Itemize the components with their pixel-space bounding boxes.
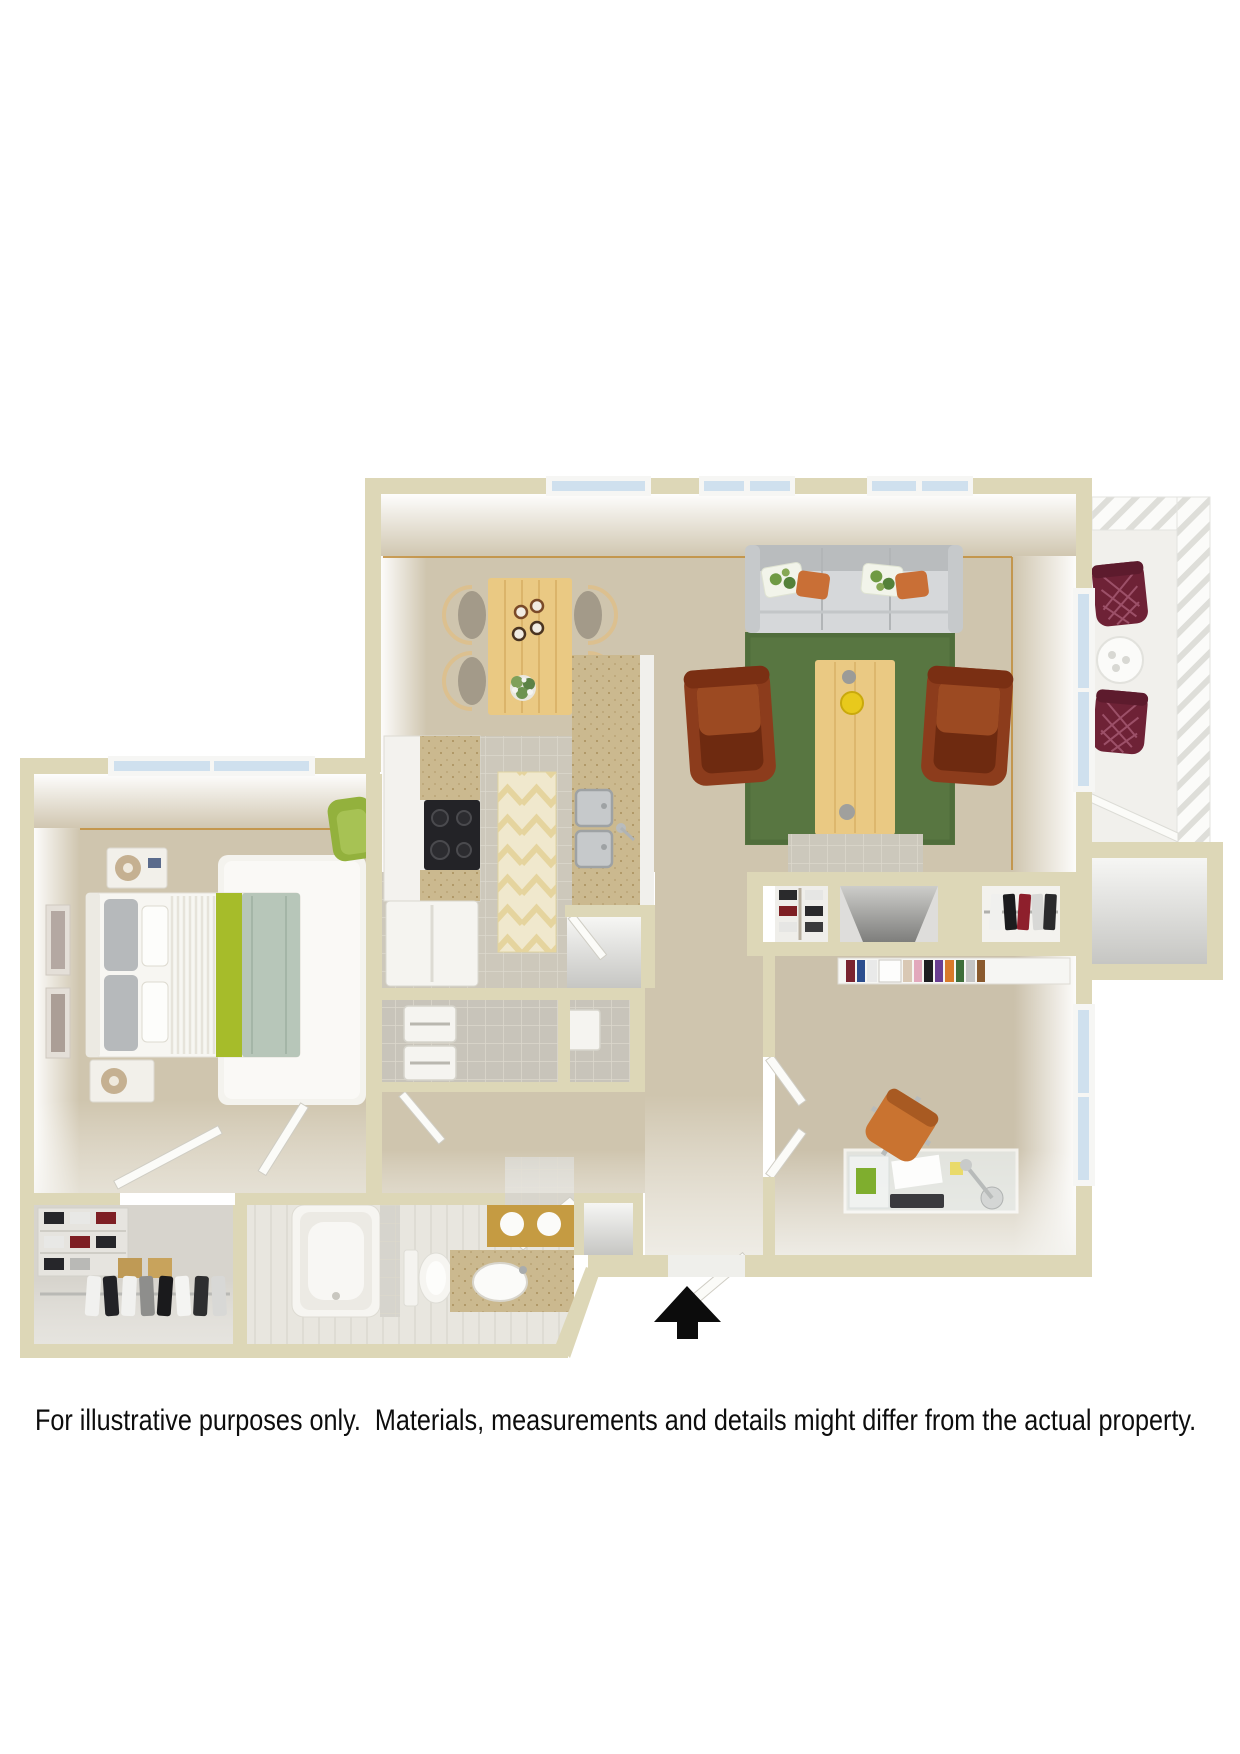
pillow (104, 899, 138, 971)
keyboard (890, 1194, 944, 1208)
office-window (1073, 1004, 1095, 1186)
dining-table (488, 578, 572, 715)
book (148, 858, 161, 868)
floor-plan-drawing (0, 0, 1240, 1754)
vanity (450, 1250, 574, 1312)
table-vase (842, 670, 856, 684)
accent-pillow (142, 982, 168, 1042)
coat-closet (984, 894, 1058, 931)
patio-chair-top (1091, 560, 1149, 627)
towel (500, 1212, 524, 1236)
gold-tile-shower (487, 1205, 574, 1247)
orange-pillow (895, 570, 930, 600)
bathtub (292, 1205, 380, 1317)
patio-storage-floor (1092, 858, 1207, 964)
table-vase (839, 804, 855, 820)
green-throw (216, 893, 242, 1057)
entry-closet-floor (584, 1203, 633, 1255)
entry-tile (788, 834, 923, 872)
coffee-table (815, 660, 895, 835)
dining-window (546, 476, 651, 496)
nightstand-bottom (90, 1060, 154, 1102)
disclaimer-text: For illustrative purposes only. Material… (35, 1404, 1228, 1438)
glass-desk (845, 1150, 1017, 1212)
storage-box (148, 1258, 172, 1278)
tile-wall-strip (380, 1205, 400, 1317)
accent-pillow (142, 906, 168, 966)
toilet (404, 1250, 453, 1306)
front-door-threshold (668, 1255, 745, 1277)
bedroom-window (108, 756, 315, 776)
bookshelf (838, 958, 1070, 984)
balcony-window (1073, 588, 1095, 792)
cooktop (424, 800, 480, 870)
oval-sink (473, 1263, 527, 1301)
floor-plan-page: For illustrative purposes only. Material… (0, 0, 1240, 1754)
skylight-window-pair-a (699, 476, 795, 496)
kitchen-counter-right (572, 655, 654, 905)
sofa (745, 545, 963, 633)
kitchen-cabinets-left (384, 736, 480, 901)
faucet (519, 1266, 527, 1274)
storage-box (118, 1258, 142, 1278)
runner-rug (498, 772, 556, 952)
entrance-arrow-icon (654, 1286, 721, 1339)
headboard (86, 893, 100, 1057)
bed (86, 893, 300, 1057)
patio-chair-bottom (1091, 689, 1148, 755)
orange-pillow (795, 570, 830, 600)
table-plant (510, 675, 536, 701)
pantry (567, 914, 641, 988)
railing-side (1177, 497, 1210, 845)
fruit-bowl (841, 692, 863, 714)
pillow (104, 975, 138, 1051)
towel (537, 1212, 561, 1236)
green-binder (856, 1168, 876, 1194)
nightstand-top (107, 848, 167, 888)
leather-armchair-right (920, 665, 1014, 787)
patio-table (1097, 637, 1143, 683)
sage-blanket (242, 893, 300, 1057)
leather-armchair-left (683, 665, 777, 787)
skylight-window-pair-b (867, 476, 973, 496)
refrigerator (386, 901, 478, 986)
shoe-shelves (38, 1208, 128, 1276)
